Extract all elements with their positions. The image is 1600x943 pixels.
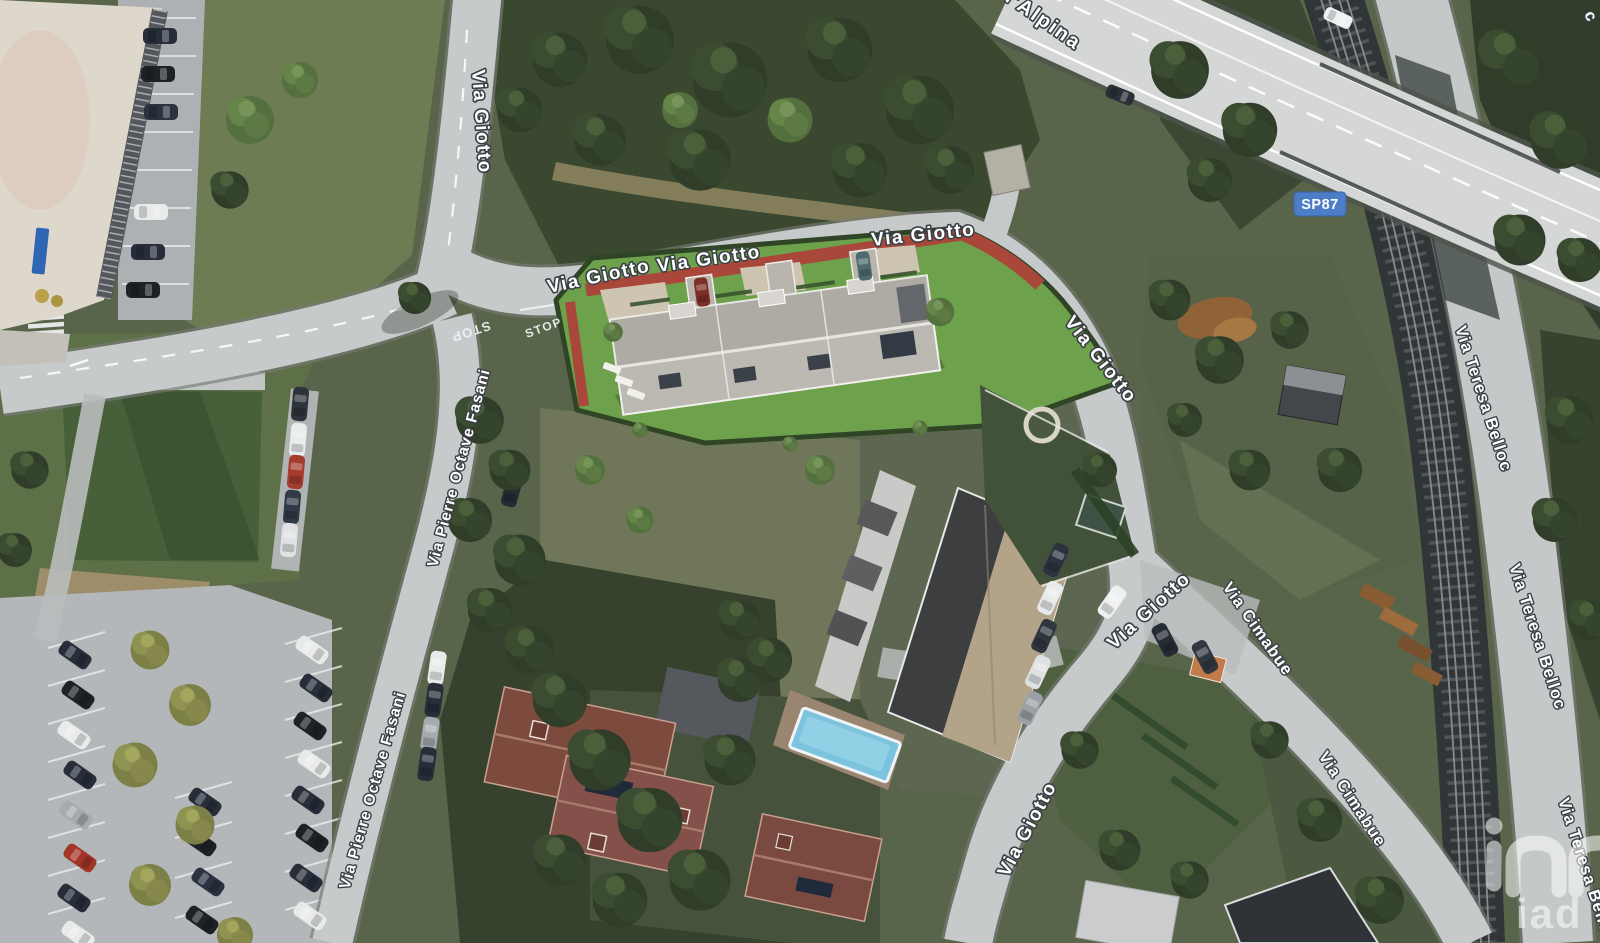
satellite-map[interactable]: Via Giotto Via Giotto Via Giotto Via Gio… [0,0,1600,943]
route-badge-text: SP87 [1301,197,1338,213]
map-canvas[interactable]: Via Giotto Via Giotto Via Giotto Via Gio… [0,0,1600,943]
watermark-text: iad [1516,890,1583,937]
shed [1278,365,1346,425]
route-badge-sp87: SP87 [1294,192,1346,216]
iad-logo-dot [1486,818,1503,835]
